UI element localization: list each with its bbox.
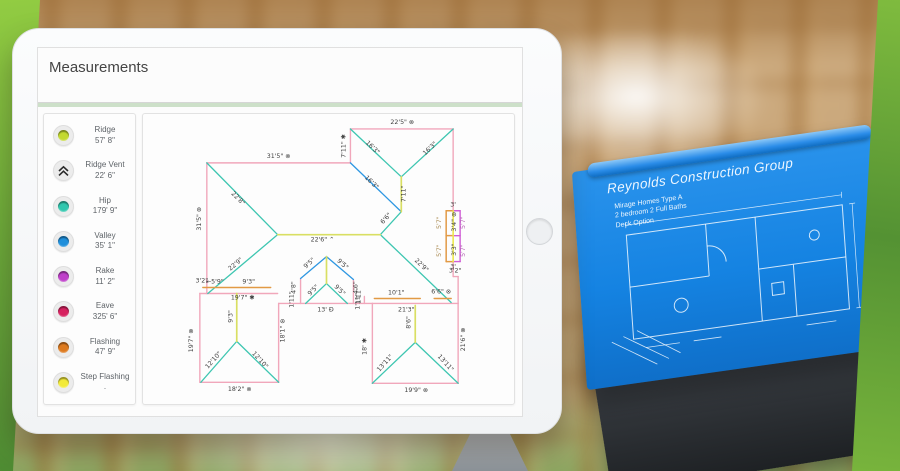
legend-item-label: Flashing <box>77 337 133 347</box>
legend-item-label: Eave <box>77 301 133 311</box>
measurement-label: 22'9" <box>413 257 430 274</box>
measurement-label: 9'5" <box>307 283 321 297</box>
legend-item-valley[interactable]: Valley35' 1" <box>46 231 133 252</box>
legend-item-value: 47' 9" <box>77 347 133 357</box>
legend-item-step-flashing[interactable]: Step Flashing. <box>46 372 133 393</box>
legend-item-flashing[interactable]: Flashing47' 9" <box>46 337 133 358</box>
measurement-label: 12'10" <box>250 350 269 370</box>
measurement-label: 9'3" <box>228 310 235 323</box>
measurement-label: 19'7" ✱ <box>231 294 255 301</box>
measurement-label: 31'5" ⊗ <box>267 153 291 160</box>
eave-dot <box>58 306 69 317</box>
flashing-dot <box>58 342 69 353</box>
measurement-label: 1'11" <box>355 287 362 304</box>
measurement-label: 10'1" <box>388 290 405 297</box>
legend-item-value: 57' 8" <box>77 136 133 146</box>
hip-color-dot-icon <box>53 196 74 217</box>
legend-item-value: 179' 9" <box>77 206 133 216</box>
measurement-label: 18' ✱ <box>361 338 368 355</box>
legend-item-ridge[interactable]: Ridge57' 8" <box>46 125 133 146</box>
legend-panel: Ridge57' 8"Ridge Vent22' 6"Hip179' 9"Val… <box>43 113 136 405</box>
rake-dot <box>58 271 69 282</box>
measurement-label: 9'5" <box>335 258 349 272</box>
legend-item-value: 11' 2" <box>77 277 133 287</box>
measurement-label: 3'3" <box>451 243 458 256</box>
measurement-label: 9'5" <box>333 284 347 298</box>
legend-item-label: Rake <box>77 266 133 276</box>
measurement-label: 3' <box>450 202 456 209</box>
measurement-label: 8'6" <box>405 316 412 329</box>
roof-diagram: 31'5" ⊗7'11" ✱22'5" ⊗31'5" ⊛22'8"16'3"16… <box>145 116 512 405</box>
legend-item-value: 35' 1" <box>77 241 133 251</box>
legend-item-label: Valley <box>77 231 133 241</box>
measurement-label: 16'3" <box>422 140 439 157</box>
measurement-label: 3'2" <box>449 268 462 275</box>
measurement-label: 9'5" <box>303 257 317 271</box>
ridge-color-dot-icon <box>53 125 74 146</box>
measurement-label: 22'5" ⊗ <box>390 119 414 126</box>
measurement-label: 21'3" <box>398 306 415 313</box>
valley-dot <box>58 236 69 247</box>
roof-line-hip <box>201 341 237 382</box>
legend-item-label: Step Flashing <box>77 372 133 382</box>
measurement-label: ⇤5'9" <box>206 279 224 286</box>
valley-color-dot-icon <box>53 231 74 252</box>
legend-item-ridge-vent[interactable]: Ridge Vent22' 6" <box>46 160 133 181</box>
eave-color-dot-icon <box>53 301 74 322</box>
measurement-label: 16'3" <box>364 140 381 157</box>
step-flashing-color-dot-icon <box>53 372 74 393</box>
ridge-vent-chevrons-icon <box>53 160 74 181</box>
measurement-label: 7'11" ✱ <box>340 134 347 158</box>
step-flashing-dot <box>58 377 69 388</box>
measurement-label: 22'8" <box>229 190 246 207</box>
measurement-label: 13' Ð <box>317 306 334 313</box>
measurement-label: 22'6" ⌃ <box>311 237 335 244</box>
roof-line-hip <box>415 342 458 383</box>
tablet: Measurements Ridge57' 8"Ridge Vent22' 6"… <box>12 28 562 434</box>
rake-color-dot-icon <box>53 266 74 287</box>
legend-item-value: . <box>77 382 133 392</box>
legend-item-rake[interactable]: Rake11' 2" <box>46 266 133 287</box>
legend-item-value: 325' 6" <box>77 312 133 322</box>
measurement-label: 18'1" ⊛ <box>280 319 287 343</box>
measurement-label: 5'7" <box>436 244 443 257</box>
page-title: Measurements <box>49 59 148 76</box>
legend-item-hip[interactable]: Hip179' 9" <box>46 196 133 217</box>
content-area: Ridge57' 8"Ridge Vent22' 6"Hip179' 9"Val… <box>43 113 515 405</box>
measurement-label: 19'9" ⊗ <box>404 387 428 394</box>
measurement-label: 31'5" ⊛ <box>196 207 203 231</box>
legend-item-value: 22' 6" <box>77 171 133 181</box>
measurement-label: 21'6" ⊗ <box>460 327 467 351</box>
flashing-color-dot-icon <box>53 337 74 358</box>
header-divider <box>38 102 522 107</box>
tablet-screen: Measurements Ridge57' 8"Ridge Vent22' 6"… <box>37 47 523 417</box>
ridge-dot <box>58 130 69 141</box>
blueprint-sheet: Reynolds Construction Group Mirage Homes… <box>572 128 900 390</box>
measurement-label: 1'11" <box>289 291 296 308</box>
diagram-panel: 31'5" ⊗7'11" ✱22'5" ⊗31'5" ⊛22'8"16'3"16… <box>142 113 515 405</box>
measurement-label: 5'7" <box>460 244 467 257</box>
legend-item-label: Ridge <box>77 125 133 135</box>
measurement-label: 7'11" <box>400 185 407 202</box>
legend-item-label: Ridge Vent <box>77 160 133 170</box>
measurement-label: 5'7" <box>436 216 443 229</box>
measurement-label: 3'4" ⊛ <box>451 212 458 232</box>
measurement-label: 19'7" ⊗ <box>188 328 195 352</box>
measurement-label: 18'2" ⊗ <box>228 386 252 393</box>
measurement-label: 5'7" <box>460 216 467 229</box>
hip-dot <box>58 201 69 212</box>
roof-line-hip <box>372 342 415 383</box>
legend-item-eave[interactable]: Eave325' 6" <box>46 301 133 322</box>
page: Reynolds Construction Group Mirage Homes… <box>0 0 900 471</box>
home-button[interactable] <box>526 218 553 245</box>
measurement-label: 9'3" <box>242 279 255 286</box>
measurement-label: 6'6" ⊗ <box>431 289 451 296</box>
legend-item-label: Hip <box>77 196 133 206</box>
